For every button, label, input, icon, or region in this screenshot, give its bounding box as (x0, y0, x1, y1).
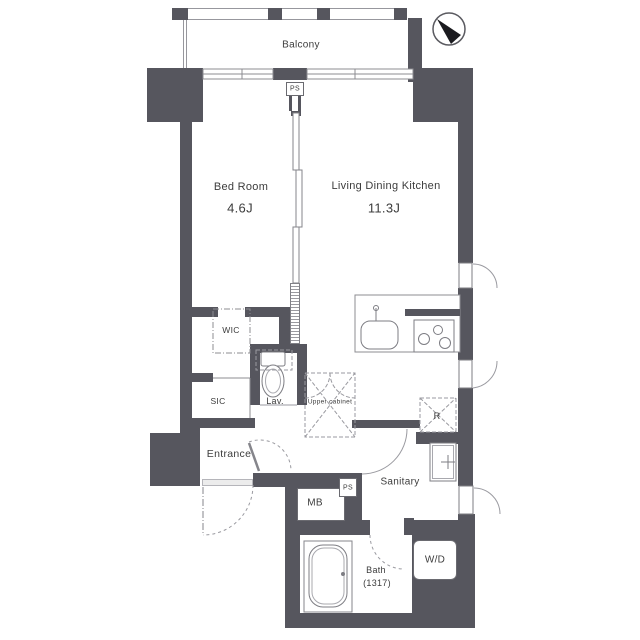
sliding-door-pocket (290, 283, 300, 344)
balcony-side-wall-left (183, 20, 187, 69)
label-bedroom-size: 4.6J (227, 201, 253, 216)
wall-segment (250, 348, 260, 405)
railing-post (268, 8, 282, 20)
bath-doorway (370, 518, 404, 535)
label-bath-size: (1317) (363, 578, 391, 588)
railing-post (317, 8, 330, 20)
wall-segment (273, 68, 307, 80)
north-arrow-icon (433, 13, 465, 45)
label-sic: SIC (210, 396, 225, 406)
wall-segment (458, 288, 473, 360)
label-entrance: Entrance (207, 448, 251, 460)
wall-segment (150, 433, 200, 486)
entrance-door-threshold (202, 479, 253, 486)
wall-segment (413, 68, 473, 122)
wall-segment (183, 418, 255, 428)
label-wd: W/D (425, 555, 445, 566)
wall-segment (250, 307, 290, 317)
wall-segment (352, 420, 420, 428)
wall-segment (180, 373, 213, 382)
pipe-duct-cap (291, 111, 301, 116)
railing-post (394, 8, 407, 20)
lav-door-swing (249, 440, 291, 470)
toilet (256, 350, 292, 397)
label-bedroom: Bed Room (214, 181, 268, 193)
balcony-railing (172, 8, 407, 20)
label-ps-bottom: PS (343, 485, 353, 492)
wall-segment (190, 307, 213, 317)
wall-segment (190, 428, 200, 438)
label-upper-cabinet: Upper cabinet (308, 399, 352, 406)
railing-post (172, 8, 188, 20)
label-bath: Bath (366, 565, 386, 575)
label-wic: WIC (222, 325, 239, 335)
floor-plan: Balcony Bed Room 4.6J Living Dining Kitc… (0, 0, 640, 640)
window-band (203, 69, 413, 79)
wall-segment (416, 432, 458, 444)
wall-segment (279, 317, 290, 345)
label-balcony: Balcony (282, 40, 320, 51)
label-ldk-size: 11.3J (368, 201, 400, 216)
wall-segment (458, 388, 473, 486)
label-sanitary: Sanitary (380, 477, 419, 488)
label-ldk: Living Dining Kitchen (331, 180, 440, 192)
wall-segment (180, 122, 192, 433)
label-ps-top: PS (290, 86, 300, 93)
label-lav: Lav. (266, 396, 284, 406)
label-mb: MB (307, 498, 323, 509)
wall-segment (404, 518, 414, 535)
wall-segment (297, 344, 307, 405)
sliding-partition (293, 113, 302, 283)
room-bath (300, 535, 412, 613)
label-refrigerator: R (434, 411, 441, 421)
entrance-door-swing (203, 485, 253, 535)
wall-segment (213, 307, 218, 317)
pipe-duct (289, 96, 301, 111)
kitchen-counter (355, 295, 460, 352)
wall-segment (245, 307, 250, 317)
wall-segment (147, 68, 203, 122)
wall-segment (458, 122, 473, 263)
